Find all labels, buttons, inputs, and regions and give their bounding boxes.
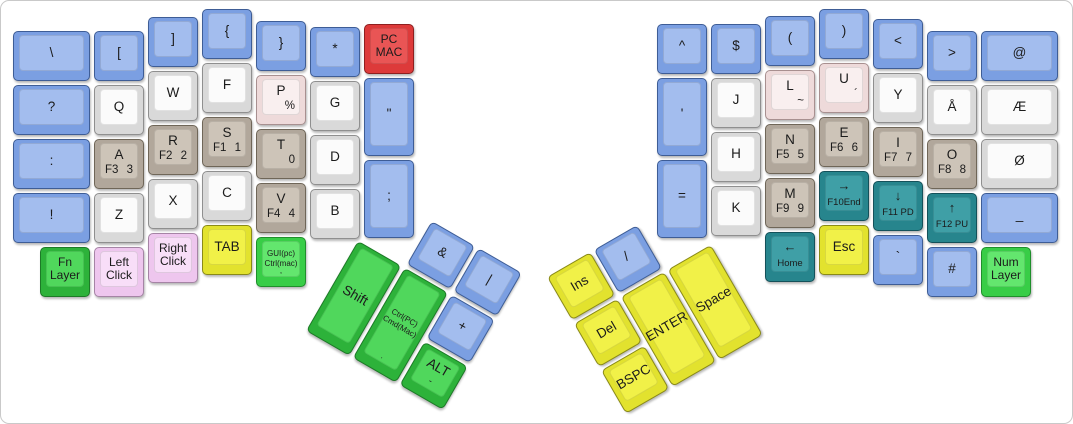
keycap-top-surface: ` xyxy=(879,239,917,275)
keycap-top-surface: K xyxy=(717,190,755,226)
key-underscore[interactable]: _ xyxy=(981,193,1058,243)
key-t[interactable]: T0 xyxy=(256,129,306,179)
key-n-label-main: N xyxy=(785,132,795,147)
keycap-top-surface: $ xyxy=(717,28,755,64)
key-tab-label-main: TAB xyxy=(214,239,239,254)
key-f12-pu[interactable]: ↑F12 PU xyxy=(927,193,977,243)
key-num-layer[interactable]: Num Layer xyxy=(981,247,1031,297)
keycap-top-surface: ( xyxy=(771,20,809,56)
key-n-label-bl: F5 xyxy=(776,149,789,161)
key-z-label-main: Z xyxy=(115,207,123,222)
keycap-top-surface: SF11 xyxy=(208,121,246,157)
key-e-label-main: E xyxy=(839,125,848,140)
keycap-top-surface: \ xyxy=(19,35,84,71)
key-y-label-main: Y xyxy=(893,87,902,102)
key-j-label-main: J xyxy=(733,92,740,107)
key-t-label-br: 0 xyxy=(289,154,295,166)
key-o-label-br: 8 xyxy=(960,164,966,176)
key-bracket-open-label-main: [ xyxy=(117,45,121,60)
key-asterisk-label-main: * xyxy=(332,41,337,56)
key-j[interactable]: J xyxy=(711,78,761,128)
keycap-top-surface: ALT- xyxy=(410,348,461,398)
key-s-label-bl: F1 xyxy=(213,142,226,154)
key-a-label-br: 3 xyxy=(127,164,133,176)
key-ctrl-cmd-label-main: Ctrl(PC) Cmd(Mac) xyxy=(381,305,423,341)
keycap-top-surface: C xyxy=(208,175,246,211)
key-plus-label-main: + xyxy=(455,318,469,335)
keycap-top-surface: NF55 xyxy=(771,128,809,164)
keycap-top-surface: Æ xyxy=(987,89,1052,125)
key-u[interactable]: U´ xyxy=(819,63,869,113)
key-brace-close[interactable]: } xyxy=(256,21,306,71)
key-q[interactable]: Q xyxy=(94,85,144,135)
key-home[interactable]: ←Home xyxy=(765,232,815,282)
key-o[interactable]: OF88 xyxy=(927,139,977,189)
key-greater-than-label-main: > xyxy=(948,45,956,60)
keycap-top-surface: / xyxy=(601,231,652,281)
key-paren-open[interactable]: ( xyxy=(765,16,815,66)
keycap-top-surface: > xyxy=(933,35,971,71)
keycap-top-surface: Ins xyxy=(554,258,605,308)
key-question[interactable]: ? xyxy=(13,85,90,135)
keycap-top-surface: B xyxy=(316,193,354,229)
key-c[interactable]: C xyxy=(202,171,252,221)
keycap-top-surface: ↑F12 PU xyxy=(933,197,971,233)
keycap-top-surface: Z xyxy=(100,197,138,233)
keycap-top-surface: T0 xyxy=(262,133,300,169)
key-d[interactable]: D xyxy=(310,135,360,185)
keycap-top-surface: Q xyxy=(100,89,138,125)
keycap-top-surface: ↓F11 PD xyxy=(879,185,917,221)
key-o-slash[interactable]: Ø xyxy=(981,139,1058,189)
key-f10-end-label-main: → xyxy=(838,179,851,194)
key-w[interactable]: W xyxy=(148,71,198,121)
key-f-label-main: F xyxy=(223,77,231,92)
key-bracket-close[interactable]: ] xyxy=(148,17,198,67)
key-q-label-main: Q xyxy=(114,99,125,114)
key-gui-ctrl-label-tiny: , xyxy=(263,266,299,275)
key-apostrophe-label-main: ' xyxy=(681,106,684,121)
key-backslash-label-main: \ xyxy=(50,45,54,60)
key-pc-mac[interactable]: PC MAC xyxy=(364,24,414,74)
key-backtick-label-main: ` xyxy=(896,249,901,264)
keycap-top-surface: TAB xyxy=(208,229,246,265)
keycap-top-surface: ) xyxy=(825,13,863,49)
key-b[interactable]: B xyxy=(310,189,360,239)
keycap-top-surface: G xyxy=(316,85,354,121)
key-n-label-br: 5 xyxy=(798,149,804,161)
key-space-label-main: Space xyxy=(693,284,734,316)
key-bspc-label-main: BSPC xyxy=(614,361,653,392)
key-right-click[interactable]: Right Click xyxy=(148,233,198,283)
key-gui-ctrl[interactable]: GUI(pc) Ctrl(mac), xyxy=(256,237,306,287)
key-r[interactable]: RF22 xyxy=(148,125,198,175)
key-g[interactable]: G xyxy=(310,81,360,131)
key-s-label-br: 1 xyxy=(235,142,241,154)
key-n[interactable]: NF55 xyxy=(765,124,815,174)
key-equals-label-main: = xyxy=(678,188,686,203)
key-f12-pu-label-sub: F12 PU xyxy=(934,219,970,230)
key-greater-than[interactable]: > xyxy=(927,31,977,81)
key-exclamation-label-main: ! xyxy=(50,207,54,222)
key-less-than[interactable]: < xyxy=(873,19,923,69)
key-brace-open-label-main: { xyxy=(225,23,230,38)
key-colon-label-main: : xyxy=(50,153,54,168)
key-esc[interactable]: Esc xyxy=(819,225,869,275)
key-b-label-main: B xyxy=(330,203,339,218)
key-ae[interactable]: Æ xyxy=(981,85,1058,135)
key-caret-label-main: ^ xyxy=(679,38,685,53)
key-tab[interactable]: TAB xyxy=(202,225,252,275)
key-dollar-label-main: $ xyxy=(732,38,740,53)
key-h[interactable]: H xyxy=(711,132,761,182)
key-m-label-bl: F9 xyxy=(776,203,789,215)
key-r-label-main: R xyxy=(168,133,178,148)
key-brace-close-label-main: } xyxy=(279,35,284,50)
keycap-top-surface: IF77 xyxy=(879,131,917,167)
keycap-top-surface: : xyxy=(19,143,84,179)
key-f[interactable]: F xyxy=(202,63,252,113)
keycap-top-surface: H xyxy=(717,136,755,172)
keycap-top-surface: Right Click xyxy=(154,237,192,273)
key-semicolon[interactable]: ; xyxy=(364,160,414,238)
key-less-than-label-main: < xyxy=(894,33,902,48)
key-f11-pd-label-sub: F11 PD xyxy=(880,207,916,218)
keycap-top-surface: # xyxy=(933,251,971,287)
key-a-ring[interactable]: Å xyxy=(927,85,977,135)
key-ins-label-main: Ins xyxy=(568,273,591,295)
keycap-top-surface: Esc xyxy=(825,229,863,265)
key-bracket-close-label-main: ] xyxy=(171,31,175,46)
key-double-quote-label-main: " xyxy=(387,106,392,121)
key-r-label-bl: F2 xyxy=(159,150,172,162)
keycap-top-surface: < xyxy=(879,23,917,59)
key-num-layer-label-main: Num Layer xyxy=(991,256,1021,283)
key-u-label-br: ´ xyxy=(854,88,858,100)
key-ae-label-main: Æ xyxy=(1013,99,1027,114)
key-r-label-br: 2 xyxy=(181,150,187,162)
keycap-top-surface: OF88 xyxy=(933,143,971,179)
key-apostrophe[interactable]: ' xyxy=(657,78,707,156)
keycap-top-surface: P% xyxy=(262,79,300,115)
key-slash-label-main: / xyxy=(621,249,632,264)
key-fn-layer[interactable]: Fn Layer xyxy=(40,247,90,297)
key-i[interactable]: IF77 xyxy=(873,127,923,177)
key-e-label-br: 6 xyxy=(852,142,858,154)
key-hash[interactable]: # xyxy=(927,247,977,297)
key-fn-layer-label-main: Fn Layer xyxy=(50,256,80,283)
key-v-label-bl: F4 xyxy=(267,208,280,220)
key-home-label-sub: Home xyxy=(772,258,808,269)
keycap-top-surface: Y xyxy=(879,77,917,113)
key-s[interactable]: SF11 xyxy=(202,117,252,167)
keycap-top-surface: U´ xyxy=(825,67,863,103)
key-enter-label-main: ENTER xyxy=(643,309,690,345)
key-k[interactable]: K xyxy=(711,186,761,236)
key-o-label-bl: F8 xyxy=(938,164,951,176)
keyboard-layout-canvas: \?:!Fn Layer[QAF33ZLeft Click]WRF22XRigh… xyxy=(0,0,1073,424)
key-o-slash-label-main: Ø xyxy=(1014,153,1025,168)
key-paren-close-label-main: ) xyxy=(842,23,847,38)
key-colon[interactable]: : xyxy=(13,139,90,189)
key-exclamation[interactable]: ! xyxy=(13,193,90,243)
key-h-label-main: H xyxy=(731,146,741,161)
keycap-top-surface: Left Click xyxy=(100,251,138,287)
key-asterisk[interactable]: * xyxy=(310,27,360,77)
keycap-top-surface: * xyxy=(316,31,354,67)
key-ampersand-label-main: & xyxy=(435,244,450,262)
key-del-label-main: Del xyxy=(594,319,619,342)
key-at[interactable]: @ xyxy=(981,31,1058,81)
key-ctrl-cmd-label-tiny: . xyxy=(365,343,401,369)
key-bracket-open[interactable]: [ xyxy=(94,31,144,81)
key-i-label-main: I xyxy=(896,135,900,150)
key-l-label-main: L xyxy=(786,78,794,93)
key-paren-close[interactable]: ) xyxy=(819,9,869,59)
keycap-top-surface: @ xyxy=(987,35,1052,71)
keycap-top-surface: VF44 xyxy=(262,187,300,223)
key-c-label-main: C xyxy=(222,185,232,200)
key-semicolon-label-main: ; xyxy=(387,188,391,203)
keycap-top-surface: ! xyxy=(19,197,84,233)
key-shift-label-main: Shift xyxy=(340,282,371,309)
keycap-top-surface: ; xyxy=(370,164,408,228)
key-i-label-bl: F7 xyxy=(884,152,897,164)
key-m-label-main: M xyxy=(784,186,795,201)
key-right-click-label-main: Right Click xyxy=(159,242,187,269)
key-d-label-main: D xyxy=(330,149,340,164)
keycap-top-surface: & xyxy=(417,227,468,277)
key-at-label-main: @ xyxy=(1013,45,1027,60)
key-e[interactable]: EF66 xyxy=(819,117,869,167)
key-t-label-main: T xyxy=(277,137,285,152)
keycap-top-surface: W xyxy=(154,75,192,111)
keycap-top-surface: | xyxy=(464,254,515,304)
keycap-top-surface: } xyxy=(262,25,300,61)
key-a-label-main: A xyxy=(114,147,123,162)
key-x[interactable]: X xyxy=(148,179,198,229)
key-p-label-main: P xyxy=(276,83,285,98)
key-s-label-main: S xyxy=(222,125,231,140)
key-o-label-main: O xyxy=(947,147,958,162)
key-backtick[interactable]: ` xyxy=(873,235,923,285)
key-l[interactable]: L~ xyxy=(765,70,815,120)
key-a-label-bl: F3 xyxy=(105,164,118,176)
key-double-quote[interactable]: " xyxy=(364,78,414,156)
key-f11-pd-label-main: ↓ xyxy=(895,189,902,204)
key-f12-pu-label-main: ↑ xyxy=(949,201,956,216)
keycap-top-surface: Fn Layer xyxy=(46,251,84,287)
keycap-top-surface: F xyxy=(208,67,246,103)
key-v[interactable]: VF44 xyxy=(256,183,306,233)
keycap-top-surface: Å xyxy=(933,89,971,125)
key-question-label-main: ? xyxy=(48,99,56,114)
key-brace-open[interactable]: { xyxy=(202,9,252,59)
keycap-top-surface: →F10End xyxy=(825,175,863,211)
keycap-top-surface: RF22 xyxy=(154,129,192,165)
key-z[interactable]: Z xyxy=(94,193,144,243)
keycap-top-surface: MF99 xyxy=(771,182,809,218)
keycap-top-surface: " xyxy=(370,82,408,146)
keycap-top-surface: BSPC xyxy=(608,352,659,402)
keycap-top-surface: ' xyxy=(663,82,701,146)
keycap-top-surface: PC MAC xyxy=(370,28,408,64)
key-paren-open-label-main: ( xyxy=(788,30,793,45)
keycap-top-surface: ^ xyxy=(663,28,701,64)
keycap-top-surface: AF33 xyxy=(100,143,138,179)
keycap-top-surface: EF66 xyxy=(825,121,863,157)
key-w-label-main: W xyxy=(167,85,180,100)
keycap-top-surface: D xyxy=(316,139,354,175)
key-p-label-br: % xyxy=(285,100,295,112)
key-hash-label-main: # xyxy=(948,261,956,276)
key-esc-label-main: Esc xyxy=(833,239,856,254)
keycap-top-surface: + xyxy=(437,301,488,351)
key-i-label-br: 7 xyxy=(906,152,912,164)
key-a[interactable]: AF33 xyxy=(94,139,144,189)
key-pipe-label-main: | xyxy=(484,272,495,287)
key-f11-pd[interactable]: ↓F11 PD xyxy=(873,181,923,231)
keycap-top-surface: Del xyxy=(581,305,632,355)
key-v-label-main: V xyxy=(276,191,285,206)
keycap-top-surface: X xyxy=(154,183,192,219)
key-caret[interactable]: ^ xyxy=(657,24,707,74)
keycap-top-surface: { xyxy=(208,13,246,49)
key-equals[interactable]: = xyxy=(657,160,707,238)
key-k-label-main: K xyxy=(731,200,740,215)
key-y[interactable]: Y xyxy=(873,73,923,123)
keycap-top-surface: Num Layer xyxy=(987,251,1025,287)
key-f10-end-label-sub: F10End xyxy=(826,197,862,208)
keycap-top-surface: ←Home xyxy=(771,236,809,272)
key-home-label-main: ← xyxy=(784,240,797,255)
key-underscore-label-main: _ xyxy=(1016,207,1024,222)
key-a-ring-label-main: Å xyxy=(947,99,956,114)
key-p[interactable]: P% xyxy=(256,75,306,125)
key-l-label-br: ~ xyxy=(797,95,804,107)
key-m-label-br: 9 xyxy=(798,203,804,215)
key-e-label-bl: F6 xyxy=(830,142,843,154)
key-v-label-br: 4 xyxy=(289,208,295,220)
key-f10-end[interactable]: →F10End xyxy=(819,171,869,221)
key-backslash[interactable]: \ xyxy=(13,31,90,81)
key-u-label-main: U xyxy=(839,71,849,86)
keycap-top-surface: = xyxy=(663,164,701,228)
keycap-top-surface: J xyxy=(717,82,755,118)
key-left-click[interactable]: Left Click xyxy=(94,247,144,297)
keycap-top-surface: ] xyxy=(154,21,192,57)
key-pc-mac-label-main: PC MAC xyxy=(376,33,403,60)
keycap-top-surface: Ø xyxy=(987,143,1052,179)
key-x-label-main: X xyxy=(168,193,177,208)
keycap-top-surface: L~ xyxy=(771,74,809,110)
key-left-click-label-main: Left Click xyxy=(106,256,132,283)
keycap-top-surface: GUI(pc) Ctrl(mac), xyxy=(262,241,300,277)
keycap-top-surface: [ xyxy=(100,35,138,71)
key-m[interactable]: MF99 xyxy=(765,178,815,228)
keycap-top-surface: ? xyxy=(19,89,84,125)
key-dollar[interactable]: $ xyxy=(711,24,761,74)
key-g-label-main: G xyxy=(330,95,341,110)
keycap-top-surface: _ xyxy=(987,197,1052,233)
